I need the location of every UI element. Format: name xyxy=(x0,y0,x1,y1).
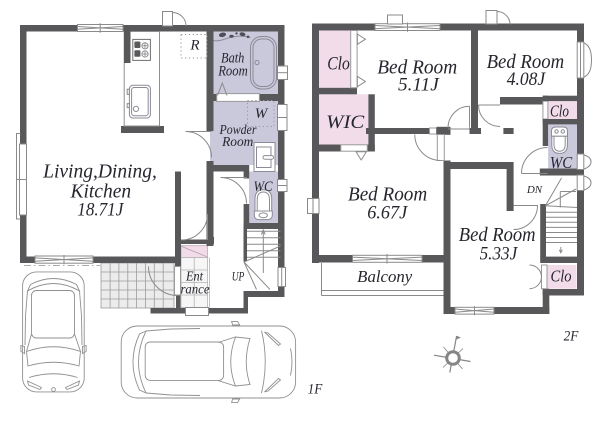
svg-text:Clo: Clo xyxy=(550,102,569,121)
svg-text:4.08J: 4.08J xyxy=(507,69,547,90)
svg-text:2F: 2F xyxy=(564,329,579,345)
svg-text:Living,Dining,: Living,Dining, xyxy=(42,162,157,183)
svg-text:Room: Room xyxy=(221,135,253,150)
svg-text:Balcony: Balcony xyxy=(357,267,413,286)
svg-text:UP: UP xyxy=(232,270,245,284)
svg-text:DN: DN xyxy=(526,184,543,196)
svg-text:rance: rance xyxy=(180,283,209,298)
svg-text:Clo: Clo xyxy=(551,267,572,286)
svg-text:W: W xyxy=(255,106,269,122)
svg-text:WC: WC xyxy=(253,179,273,195)
svg-text:WC: WC xyxy=(550,153,573,172)
svg-text:R: R xyxy=(189,38,199,54)
svg-text:Room: Room xyxy=(217,64,247,80)
svg-text:1F: 1F xyxy=(308,382,323,398)
svg-text:WIC: WIC xyxy=(326,113,365,133)
svg-text:6.67J: 6.67J xyxy=(367,203,408,224)
svg-text:Clo: Clo xyxy=(327,55,350,75)
svg-text:5.33J: 5.33J xyxy=(480,244,519,265)
svg-text:18.71J: 18.71J xyxy=(77,200,124,221)
svg-text:5.11J: 5.11J xyxy=(398,75,440,96)
